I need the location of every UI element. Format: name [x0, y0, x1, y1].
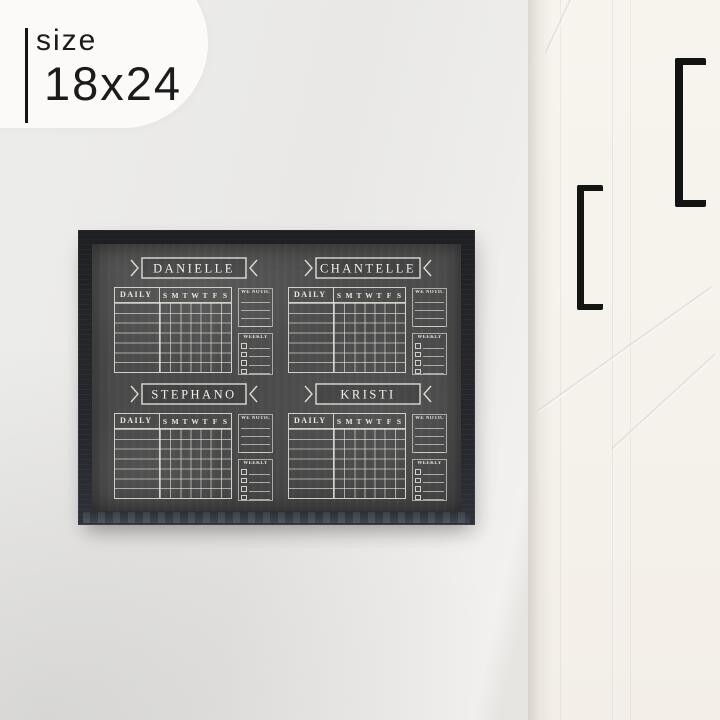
write-in-line — [415, 319, 444, 327]
day-letter: W — [190, 417, 200, 426]
write-in-line — [249, 365, 271, 374]
day-letter: T — [354, 417, 364, 426]
name-banner: KRISTI — [302, 382, 434, 406]
size-badge: size 18x24 — [0, 0, 208, 128]
weekly-task-row — [415, 492, 444, 500]
chore-table-header: DAILY SMTWTFS — [115, 288, 231, 303]
chore-table: DAILY SMTWTFS — [114, 413, 232, 499]
column-divider — [159, 414, 160, 498]
day-letter: W — [190, 291, 200, 300]
badge-divider-bar — [25, 28, 28, 123]
checkbox-outline — [415, 495, 421, 501]
weekday-letters: SMTWTFS — [334, 414, 404, 428]
day-letter: T — [180, 417, 190, 426]
day-letter: S — [334, 417, 344, 426]
chore-table-header: DAILY SMTWTFS — [289, 414, 405, 429]
chore-chart-quadrant: KRISTI DAILY SMTWTFS WE NOTICED... WEEKL… — [288, 382, 447, 501]
weekday-letters: SMTWTFS — [334, 288, 404, 302]
day-letter: S — [160, 417, 170, 426]
write-in-line — [415, 311, 444, 319]
day-letter: W — [364, 291, 374, 300]
chalkboard-frame: DANIELLE DAILY SMTWTFS WE NOTICED... WEE… — [78, 230, 475, 525]
write-in-line — [241, 421, 270, 429]
day-letter: M — [170, 417, 180, 426]
chore-rows — [289, 303, 405, 372]
we-noticed-label: WE NOTICED... — [241, 290, 270, 295]
daily-column-label: DAILY — [294, 416, 327, 425]
day-letter: S — [394, 417, 404, 426]
banner-chevron-right — [424, 386, 431, 402]
chore-rows — [289, 429, 405, 498]
day-letter: F — [384, 417, 394, 426]
day-letter: M — [344, 417, 354, 426]
weekly-box: WEEKLY — [412, 333, 447, 375]
chore-table: DAILY SMTWTFS — [288, 287, 406, 373]
write-in-line — [241, 295, 270, 303]
we-noticed-box: WE NOTICED... — [412, 288, 447, 327]
weekday-checkoff-grid — [334, 429, 405, 498]
write-in-line — [241, 445, 270, 453]
banner-chevron-left — [305, 260, 312, 276]
person-name: DANIELLE — [153, 262, 235, 276]
write-in-line — [423, 365, 445, 374]
checkbox-outline — [415, 343, 421, 349]
banner-chevron-right — [424, 260, 431, 276]
day-letter: M — [170, 291, 180, 300]
day-letter: S — [220, 291, 230, 300]
checkbox-outline — [241, 369, 247, 375]
column-divider — [159, 288, 160, 372]
daily-column-label: DAILY — [120, 416, 153, 425]
banner-chevron-right — [250, 260, 257, 276]
door-diagonal-molding — [537, 286, 713, 413]
name-banner: DANIELLE — [128, 256, 260, 280]
chalkboard-surface: DANIELLE DAILY SMTWTFS WE NOTICED... WEE… — [92, 244, 461, 511]
banner-chevron-left — [131, 260, 138, 276]
write-in-line — [241, 311, 270, 319]
checkbox-outline — [415, 369, 421, 375]
person-name: STEPHANO — [151, 388, 236, 402]
name-banner: CHANTELLE — [302, 256, 434, 280]
daily-column-label: DAILY — [294, 290, 327, 299]
chore-rows — [115, 303, 231, 372]
write-in-line — [423, 491, 445, 500]
chore-chart-quadrant: STEPHANO DAILY SMTWTFS WE NOTICED... WEE… — [114, 382, 273, 501]
day-letter: T — [354, 291, 364, 300]
day-letter: W — [364, 417, 374, 426]
checkbox-outline — [241, 486, 247, 492]
weekly-box: WEEKLY — [238, 459, 273, 501]
weekly-box: WEEKLY — [238, 333, 273, 375]
we-noticed-box: WE NOTICED... — [238, 414, 273, 453]
name-banner: STEPHANO — [128, 382, 260, 406]
write-in-line — [241, 319, 270, 327]
door-handle[interactable] — [577, 185, 603, 310]
checkbox-outline — [415, 352, 421, 358]
chore-table-header: DAILY SMTWTFS — [289, 288, 405, 303]
checkbox-outline — [415, 360, 421, 366]
chore-table: DAILY SMTWTFS — [288, 413, 406, 499]
person-name: KRISTI — [340, 388, 395, 402]
checkbox-outline — [241, 469, 247, 475]
column-divider — [333, 414, 334, 498]
banner-chevron-left — [131, 386, 138, 402]
write-in-line — [415, 303, 444, 311]
checkbox-outline — [241, 352, 247, 358]
write-in-line — [241, 429, 270, 437]
write-in-line — [241, 303, 270, 311]
weekly-task-row — [241, 366, 270, 374]
write-in-line — [249, 491, 271, 500]
weekday-checkoff-grid — [334, 303, 405, 372]
checkbox-outline — [415, 469, 421, 475]
write-in-line — [415, 295, 444, 303]
weekly-box: WEEKLY — [412, 459, 447, 501]
day-letter: T — [374, 291, 384, 300]
weekday-checkoff-grid — [160, 429, 231, 498]
product-photo-scene: size 18x24 DANIELLE DAILY SMTWTFS — [0, 0, 720, 720]
door-diagonal-molding — [611, 353, 717, 450]
day-letter: M — [344, 291, 354, 300]
day-letter: S — [160, 291, 170, 300]
weekly-task-row — [415, 366, 444, 374]
banner-chevron-right — [250, 386, 257, 402]
day-letter: F — [384, 291, 394, 300]
day-letter: T — [200, 417, 210, 426]
day-letter: S — [334, 291, 344, 300]
chore-chart-quadrant: DANIELLE DAILY SMTWTFS WE NOTICED... WEE… — [114, 256, 273, 375]
chore-table-header: DAILY SMTWTFS — [115, 414, 231, 429]
day-letter: T — [180, 291, 190, 300]
person-name: CHANTELLE — [319, 262, 415, 276]
chore-rows — [115, 429, 231, 498]
weekday-letters: SMTWTFS — [160, 288, 230, 302]
we-noticed-label: WE NOTICED... — [241, 416, 270, 421]
door-handle[interactable] — [675, 58, 706, 207]
day-letter: F — [210, 291, 220, 300]
day-letter: T — [374, 417, 384, 426]
checkbox-outline — [241, 360, 247, 366]
banner-chevron-left — [305, 386, 312, 402]
column-divider — [333, 288, 334, 372]
chore-chart-quadrant: CHANTELLE DAILY SMTWTFS WE NOTICED... WE… — [288, 256, 447, 375]
daily-column-label: DAILY — [120, 290, 153, 299]
checkbox-outline — [241, 495, 247, 501]
write-in-line — [415, 437, 444, 445]
size-value: 18x24 — [44, 56, 182, 111]
write-in-line — [241, 437, 270, 445]
we-noticed-box: WE NOTICED... — [412, 414, 447, 453]
chore-table: DAILY SMTWTFS — [114, 287, 232, 373]
write-in-line — [415, 445, 444, 453]
weekly-task-row — [241, 492, 270, 500]
weekday-checkoff-grid — [160, 303, 231, 372]
size-label: size — [36, 24, 97, 58]
white-cabinet-doors — [528, 0, 720, 720]
weekday-letters: SMTWTFS — [160, 414, 230, 428]
checkbox-outline — [415, 486, 421, 492]
checkbox-outline — [241, 343, 247, 349]
day-letter: S — [220, 417, 230, 426]
write-in-line — [415, 421, 444, 429]
we-noticed-label: WE NOTICED... — [415, 416, 444, 421]
we-noticed-label: WE NOTICED... — [415, 290, 444, 295]
door-panel-seam — [560, 0, 561, 720]
checkbox-outline — [241, 478, 247, 484]
checkbox-outline — [415, 478, 421, 484]
write-in-line — [415, 429, 444, 437]
day-letter: F — [210, 417, 220, 426]
day-letter: T — [200, 291, 210, 300]
door-panel-seam — [630, 0, 631, 720]
day-letter: S — [394, 291, 404, 300]
we-noticed-box: WE NOTICED... — [238, 288, 273, 327]
